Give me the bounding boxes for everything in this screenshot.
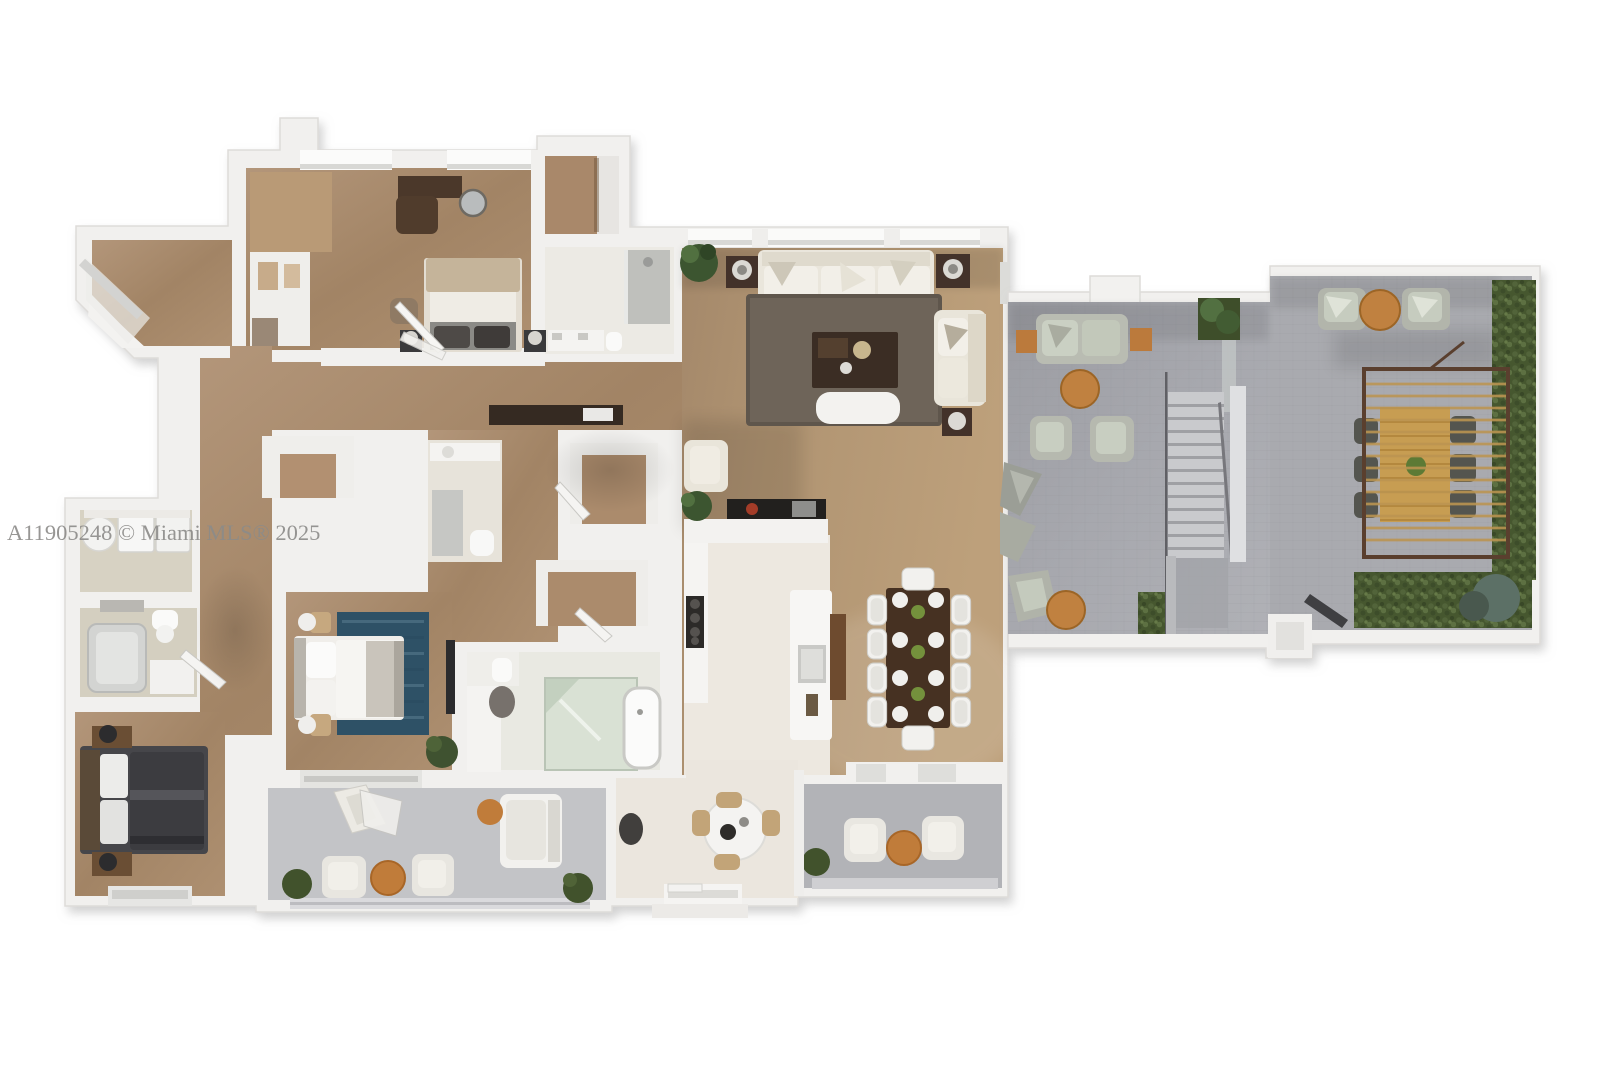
svg-text:A11905248 © Miami MLS® 2025: A11905248 © Miami MLS® 2025 <box>7 520 320 545</box>
